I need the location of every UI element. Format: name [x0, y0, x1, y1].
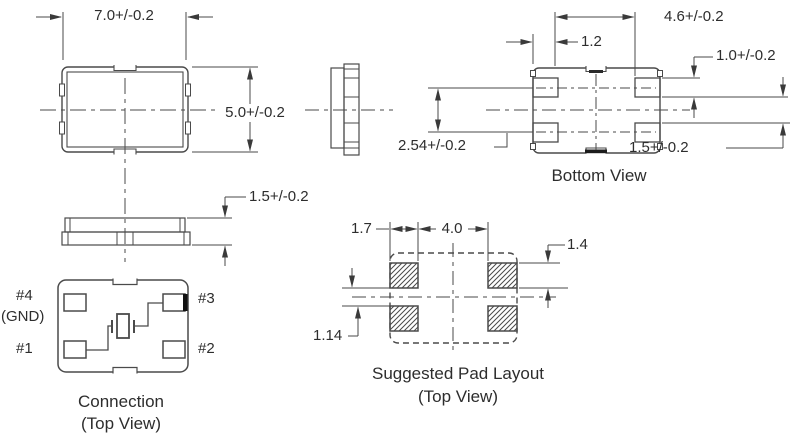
pad-layout-pad-gap-dim-label: 4.0 [442, 220, 463, 238]
package-side-view-drawing [305, 64, 393, 155]
pad-layout-drawing [352, 243, 556, 353]
front-view-thickness-dim-label: 1.5+/-0.2 [249, 188, 309, 206]
bottom-view-edge-to-pad-dim-label: 1.2 [581, 33, 602, 51]
bottom-view-title: Bottom View [551, 167, 646, 185]
connection-pin1-label: #1 [16, 340, 33, 358]
connection-pin4-label: #4 [16, 287, 33, 305]
top-view-width-dim-label: 7.0+/-0.2 [94, 7, 154, 25]
pad-layout-row-gap-dim-label: 1.14 [313, 327, 342, 345]
connection-pin3-label: #3 [198, 290, 215, 308]
bottom-view-pad-width-dim-label: 1.0+/-0.2 [716, 47, 776, 65]
dimension-drawing-figure: 7.0+/-0.2 5.0+/-0.2 1.5+/-0.2 4.6+/-0.2 … [0, 0, 795, 441]
pad-layout-pad-width-dim-label: 1.7 [351, 220, 372, 238]
front-view-dimension-lines [187, 197, 246, 266]
connection-view-drawing [58, 278, 188, 375]
pad-layout-pad-height-dim-label: 1.4 [567, 236, 588, 254]
connection-pin4-gnd-note: (GND) [1, 308, 44, 326]
package-front-view-drawing [62, 218, 190, 245]
top-view-height-dim-label: 5.0+/-0.2 [223, 104, 287, 122]
connection-view-subtitle: (Top View) [81, 415, 161, 433]
pad-layout-subtitle: (Top View) [418, 388, 498, 406]
connection-pin2-label: #2 [198, 340, 215, 358]
connection-view-title: Connection [78, 393, 164, 411]
pad-layout-title: Suggested Pad Layout [372, 365, 544, 383]
pad-layout-dimension-lines [342, 222, 568, 336]
top-view-dimension-lines [36, 12, 258, 152]
bottom-view-pad-gap-dim-label: 1.5+/-0.2 [629, 139, 689, 157]
bottom-view-dimension-lines [428, 12, 790, 148]
bottom-view-pad-pitch-dim-label: 2.54+/-0.2 [398, 137, 466, 155]
bottom-view-pad-span-dim-label: 4.6+/-0.2 [664, 8, 724, 26]
